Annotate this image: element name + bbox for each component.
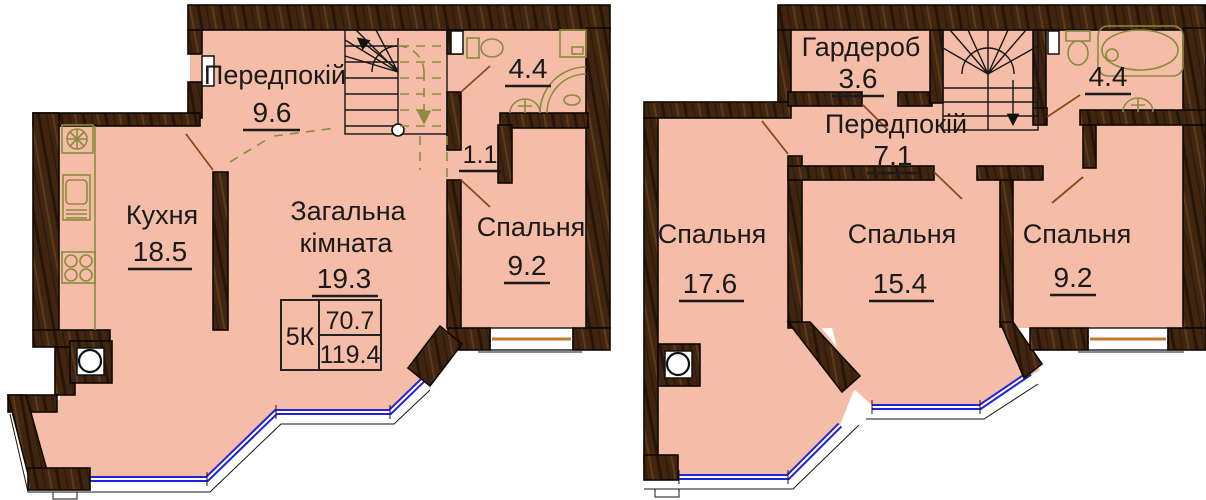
right-bedroom-window [1088, 328, 1168, 350]
room-label-living-1: Загальна [290, 196, 406, 226]
left-floorplan: 5К 70.7 119.4 Передпокій 9.6 Кухня 18.5 … [8, 5, 610, 499]
left-bedroom-window [490, 328, 573, 350]
left-vent-shaft [70, 341, 112, 383]
area-label-bathroom2: 4.4 [1089, 61, 1128, 92]
room-label-bedroom1: Спальня [658, 219, 767, 249]
area-label-kitchen: 18.5 [133, 236, 188, 267]
area-label-living: 19.3 [317, 263, 372, 294]
total-area-value: 119.4 [320, 341, 381, 369]
area-label-bedroom3: 9.2 [1054, 262, 1093, 293]
area-label-hallway: 9.6 [253, 97, 292, 128]
floorplan-canvas: 5К 70.7 119.4 Передпокій 9.6 Кухня 18.5 … [0, 0, 1206, 500]
room-label-bedroom2: Спальня [848, 219, 957, 249]
area-label-wardrobe: 3.6 [839, 63, 878, 94]
area-label-bathroom: 4.4 [509, 53, 548, 84]
area-label-hallway2: 7.1 [874, 140, 913, 171]
living-area-value: 70.7 [326, 307, 375, 335]
right-floorplan: Гардероб 3.6 Передпокій 7.1 4.4 Спальня … [644, 5, 1206, 497]
room-label-living-2: кімната [300, 228, 394, 258]
area-label-bedroom1: 17.6 [683, 268, 738, 299]
flat-type-label: 5К [286, 323, 315, 351]
area-label-bedroom: 9.2 [508, 250, 547, 281]
room-label-hallway: Передпокій [204, 60, 346, 90]
area-label-duct: 1.1 [463, 141, 498, 169]
room-label-kitchen: Кухня [126, 200, 198, 230]
room-label-bedroom3: Спальня [1023, 219, 1132, 249]
room-label-wardrobe: Гардероб [802, 32, 921, 62]
floorplan-page: 5К 70.7 119.4 Передпокій 9.6 Кухня 18.5 … [0, 0, 1206, 500]
area-label-bedroom2: 15.4 [873, 268, 928, 299]
right-vent-shaft [658, 344, 700, 386]
room-label-bedroom: Спальня [477, 212, 586, 242]
room-label-hallway2: Передпокій [825, 109, 967, 139]
